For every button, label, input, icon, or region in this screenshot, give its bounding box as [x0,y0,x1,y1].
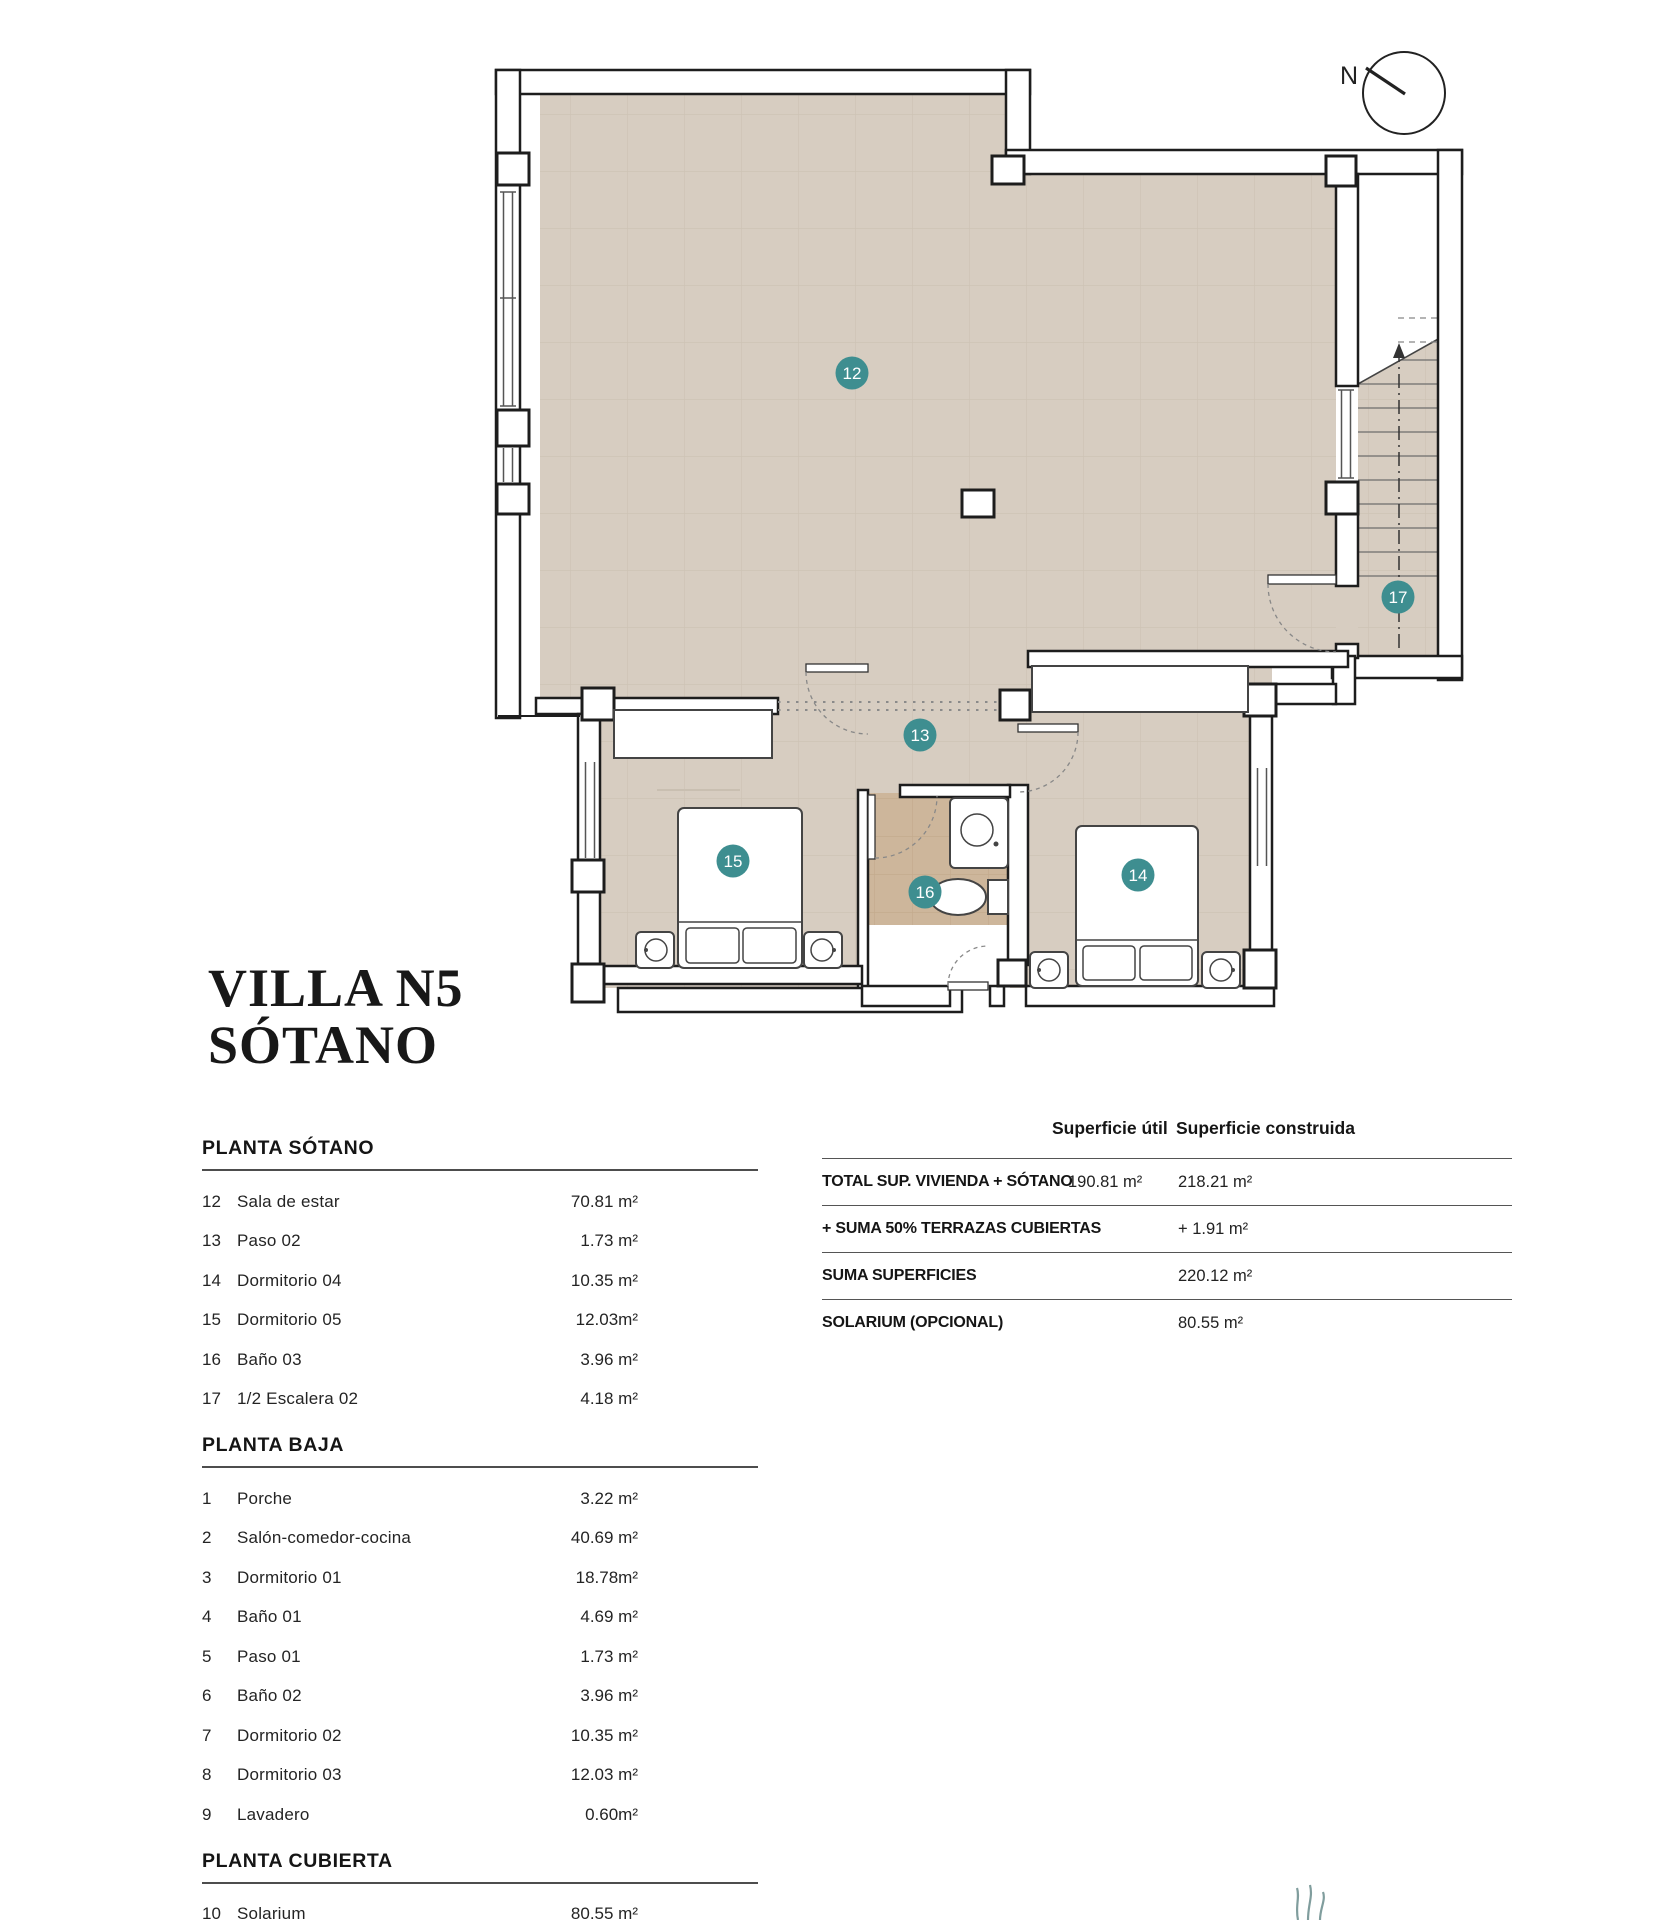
room-area: 4.69 m² [580,1607,638,1627]
north-compass: N [1340,52,1445,134]
room-area: 10.35 m² [571,1271,638,1291]
room-name: Paso 01 [237,1647,580,1667]
room-area: 4.18 m² [580,1389,638,1409]
room-number: 16 [202,1350,237,1370]
summary-col-constr: Superficie construida [1176,1110,1512,1139]
closet-room14 [1032,666,1248,712]
room-name: Dormitorio 04 [237,1271,571,1291]
room-area-row: 3Dormitorio 0118.78m² [202,1558,758,1598]
summary-label: SOLARIUM (OPCIONAL) [822,1314,1068,1332]
room-area: 70.81 m² [571,1192,638,1212]
title-line1: VILLA N5 [208,960,464,1017]
room-area: 1.73 m² [580,1231,638,1251]
room-badge-14: 14 [1122,859,1155,892]
room-badge-13: 13 [904,719,937,752]
closet-room15 [614,710,772,758]
room-areas-table: PLANTA SÓTANO12Sala de estar70.81 m²13Pa… [202,1122,758,1920]
summary-util-value: 190.81 m² [1068,1173,1174,1192]
summary-row: SOLARIUM (OPCIONAL)80.55 m² [822,1300,1512,1346]
room-badge-15: 15 [717,845,750,878]
nightstand-room14-left [1030,952,1068,988]
summary-constr-value: 80.55 m² [1174,1314,1512,1333]
grass-decoration [1297,1885,1324,1920]
room-name: Dormitorio 03 [237,1765,571,1785]
summary-label: TOTAL SUP. VIVIENDA + SÓTANO [822,1173,1068,1191]
room-number: 3 [202,1568,237,1588]
nightstand-room15-left [636,932,674,968]
room-name: Paso 02 [237,1231,580,1251]
room-number: 6 [202,1686,237,1706]
room-area-row: 6Baño 023.96 m² [202,1677,758,1717]
floorplan-sheet: N 121314151617 VILLA N5 SÓTANO PLANTA SÓ… [0,0,1664,1920]
bed-room14 [1076,826,1198,986]
room-area-row: 4Baño 014.69 m² [202,1598,758,1638]
room-area-row: 15Dormitorio 0512.03m² [202,1301,758,1341]
room-area-row: 2Salón-comedor-cocina40.69 m² [202,1519,758,1559]
floor-bath-lower-white [866,925,1010,988]
room-number: 5 [202,1647,237,1667]
room-number: 8 [202,1765,237,1785]
room-area-row: 13Paso 021.73 m² [202,1222,758,1262]
window-stair-left [1338,390,1354,478]
room-area: 12.03m² [576,1310,638,1330]
room-name: Dormitorio 05 [237,1310,576,1330]
room-area-row: 9Lavadero0.60m² [202,1795,758,1835]
room-number: 9 [202,1805,237,1825]
room-area-row: 16Baño 033.96 m² [202,1340,758,1380]
room-number: 12 [202,1192,237,1212]
room-name: Dormitorio 01 [237,1568,576,1588]
room-area: 3.96 m² [580,1350,638,1370]
section-heading: PLANTA CUBIERTA [202,1850,758,1884]
room-area-row: 1Porche3.22 m² [202,1479,758,1519]
bed-room15 [678,808,802,968]
room-name: Sala de estar [237,1192,571,1212]
summary-row: SUMA SUPERFICIES220.12 m² [822,1253,1512,1300]
svg-text:13: 13 [911,726,930,745]
surface-summary-table: Superficie útil Superficie construida TO… [822,1110,1512,1346]
room-name: Lavadero [237,1805,585,1825]
room-area-row: 5Paso 011.73 m² [202,1637,758,1677]
summary-constr-value: + 1.91 m² [1174,1220,1512,1239]
room-name: Baño 03 [237,1350,580,1370]
room-area-row: 7Dormitorio 0210.35 m² [202,1716,758,1756]
room-area: 10.35 m² [571,1726,638,1746]
svg-text:12: 12 [843,364,862,383]
summary-label: SUMA SUPERFICIES [822,1267,1068,1285]
room-area-row: 14Dormitorio 0410.35 m² [202,1261,758,1301]
room-name: Solarium [237,1904,571,1920]
room-area: 3.96 m² [580,1686,638,1706]
section-heading: PLANTA SÓTANO [202,1137,758,1171]
summary-header-row: Superficie útil Superficie construida [822,1110,1512,1159]
summary-label: + SUMA 50% TERRAZAS CUBIERTAS [822,1220,1068,1238]
compass-n-label: N [1340,62,1358,90]
room-badge-16: 16 [909,876,942,909]
room-number: 10 [202,1904,237,1920]
room-area-row: 10Solarium80.55 m² [202,1895,758,1920]
title-line2: SÓTANO [208,1017,464,1074]
room-number: 7 [202,1726,237,1746]
bathroom-toilet [930,879,1008,915]
stair-direction-arrow [1393,343,1405,358]
room-area: 1.73 m² [580,1647,638,1667]
room-number: 4 [202,1607,237,1627]
room-name: 1/2 Escalera 02 [237,1389,580,1409]
summary-constr-value: 220.12 m² [1174,1267,1512,1286]
room-area-row: 8Dormitorio 0312.03 m² [202,1756,758,1796]
room-area-row: 12Sala de estar70.81 m² [202,1182,758,1222]
floor-sala-de-estar [540,94,1336,700]
room-number: 2 [202,1528,237,1548]
svg-text:16: 16 [916,883,935,902]
summary-constr-value: 218.21 m² [1174,1173,1512,1192]
nightstand-room15-right [804,932,842,968]
room-number: 15 [202,1310,237,1330]
summary-row: + SUMA 50% TERRAZAS CUBIERTAS+ 1.91 m² [822,1206,1512,1253]
room-area: 18.78m² [576,1568,638,1588]
room-area-row: 171/2 Escalera 024.18 m² [202,1380,758,1420]
room-badge-17: 17 [1382,581,1415,614]
room-area: 0.60m² [585,1805,638,1825]
bathroom-sink [950,798,1008,868]
room-badge-12: 12 [836,357,869,390]
room-area: 12.03 m² [571,1765,638,1785]
room-number: 14 [202,1271,237,1291]
room-number: 17 [202,1389,237,1409]
room-name: Porche [237,1489,580,1509]
room-name: Baño 01 [237,1607,580,1627]
section-heading: PLANTA BAJA [202,1434,758,1468]
svg-text:15: 15 [724,852,743,871]
svg-text:17: 17 [1389,588,1408,607]
room-area: 40.69 m² [571,1528,638,1548]
room-number: 13 [202,1231,237,1251]
nightstand-room14-right [1202,952,1240,988]
room-name: Dormitorio 02 [237,1726,571,1746]
summary-col-util: Superficie útil [1052,1110,1174,1139]
room-name: Salón-comedor-cocina [237,1528,571,1548]
room-number: 1 [202,1489,237,1509]
room-area: 80.55 m² [571,1904,638,1920]
room-area: 3.22 m² [580,1489,638,1509]
room-name: Baño 02 [237,1686,580,1706]
svg-text:14: 14 [1129,866,1148,885]
page-title: VILLA N5 SÓTANO [208,960,464,1074]
summary-row: TOTAL SUP. VIVIENDA + SÓTANO190.81 m²218… [822,1159,1512,1206]
floor-stair-door-gap [1336,586,1358,644]
